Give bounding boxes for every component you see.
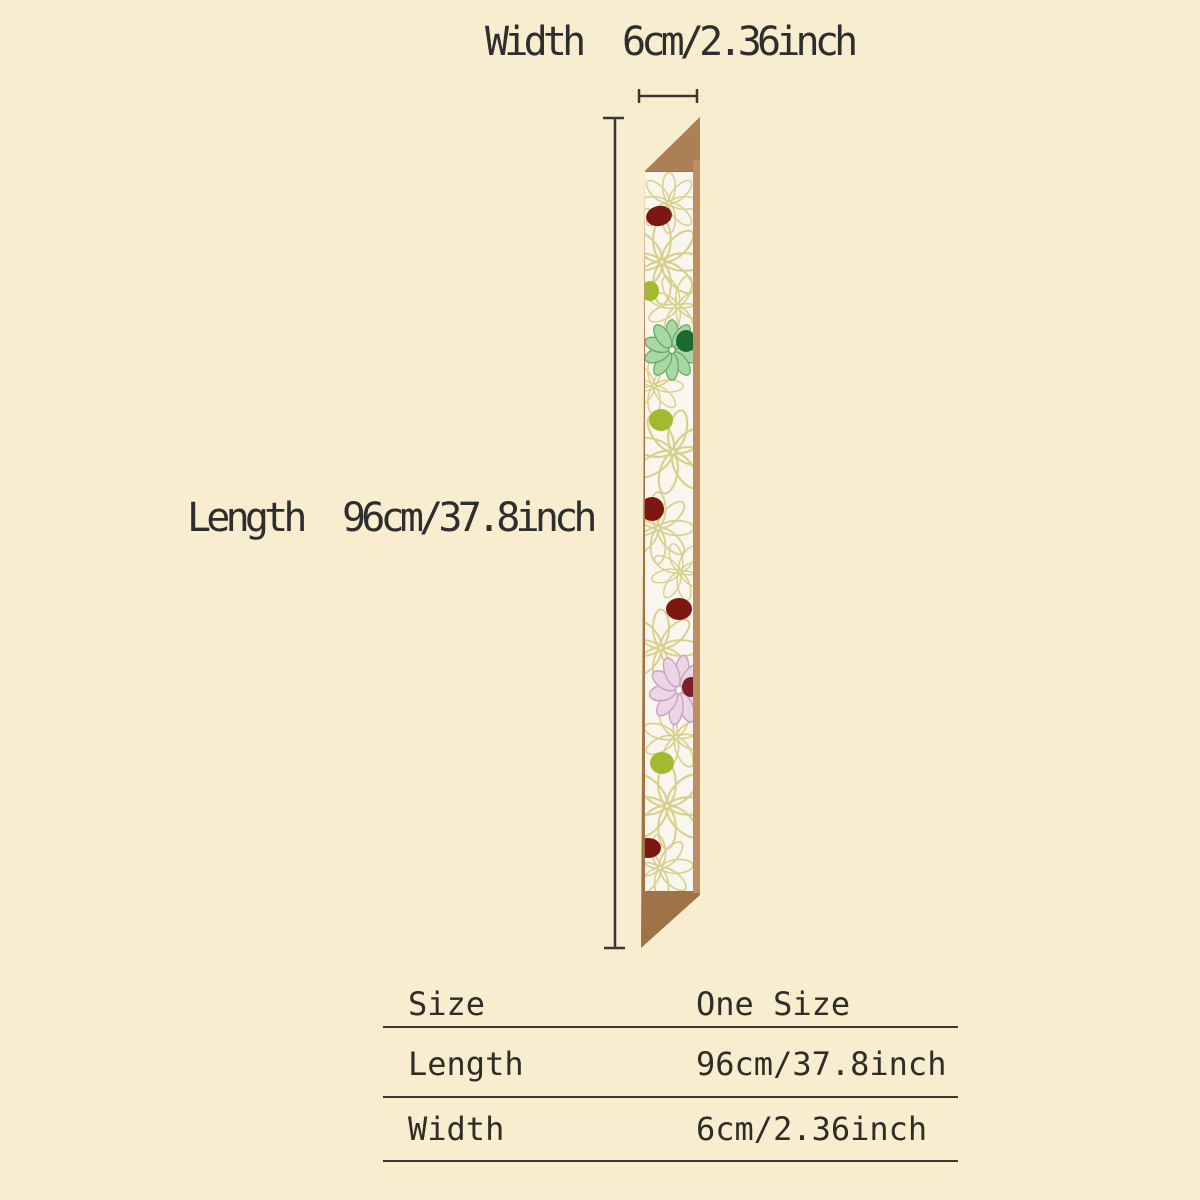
width-measure-bracket — [638, 89, 698, 103]
scarf-illustration — [0, 0, 1200, 1200]
length-measure-line — [603, 118, 625, 948]
size-table-divider — [383, 1160, 958, 1162]
size-table-row-value: 96cm/37.8inch — [696, 1048, 946, 1080]
width-annotation-label: Width — [485, 22, 581, 62]
product-size-diagram-page: Width 6cm/2.36inch Length 96cm/37.8inch … — [0, 0, 1200, 1200]
size-table-row-label: Size — [408, 988, 485, 1020]
size-table-row-value: 6cm/2.36inch — [696, 1113, 927, 1145]
length-annotation-value: 96cm/37.8inch — [342, 498, 593, 538]
size-table-divider — [383, 1096, 958, 1098]
length-annotation-label: Length — [187, 498, 303, 538]
size-table-divider — [383, 1026, 958, 1028]
width-annotation-value: 6cm/2.36inch — [622, 22, 853, 62]
size-table-row-label: Width — [408, 1113, 504, 1145]
size-table-row-label: Length — [408, 1048, 524, 1080]
size-table-row-value: One Size — [696, 988, 850, 1020]
